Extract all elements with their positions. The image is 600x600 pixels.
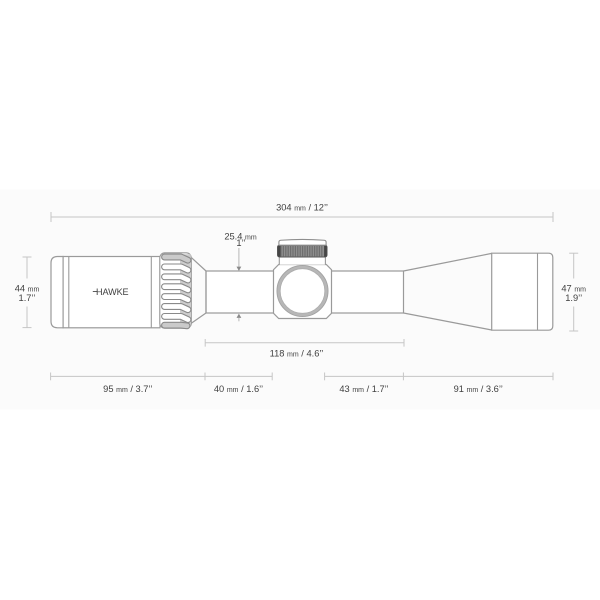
svg-text:40 mm / 1.6’’: 40 mm / 1.6’’ [214,384,263,394]
svg-text:43 mm / 1.7’’: 43 mm / 1.7’’ [339,384,388,394]
svg-text:1.7’’: 1.7’’ [19,293,36,303]
svg-text:HAWKE: HAWKE [96,286,129,297]
svg-text:95 mm / 3.7’’: 95 mm / 3.7’’ [103,384,152,394]
svg-text:1’’: 1’’ [236,238,245,248]
svg-text:1.9’’: 1.9’’ [565,293,582,303]
svg-text:91 mm / 3.6’’: 91 mm / 3.6’’ [454,384,503,394]
